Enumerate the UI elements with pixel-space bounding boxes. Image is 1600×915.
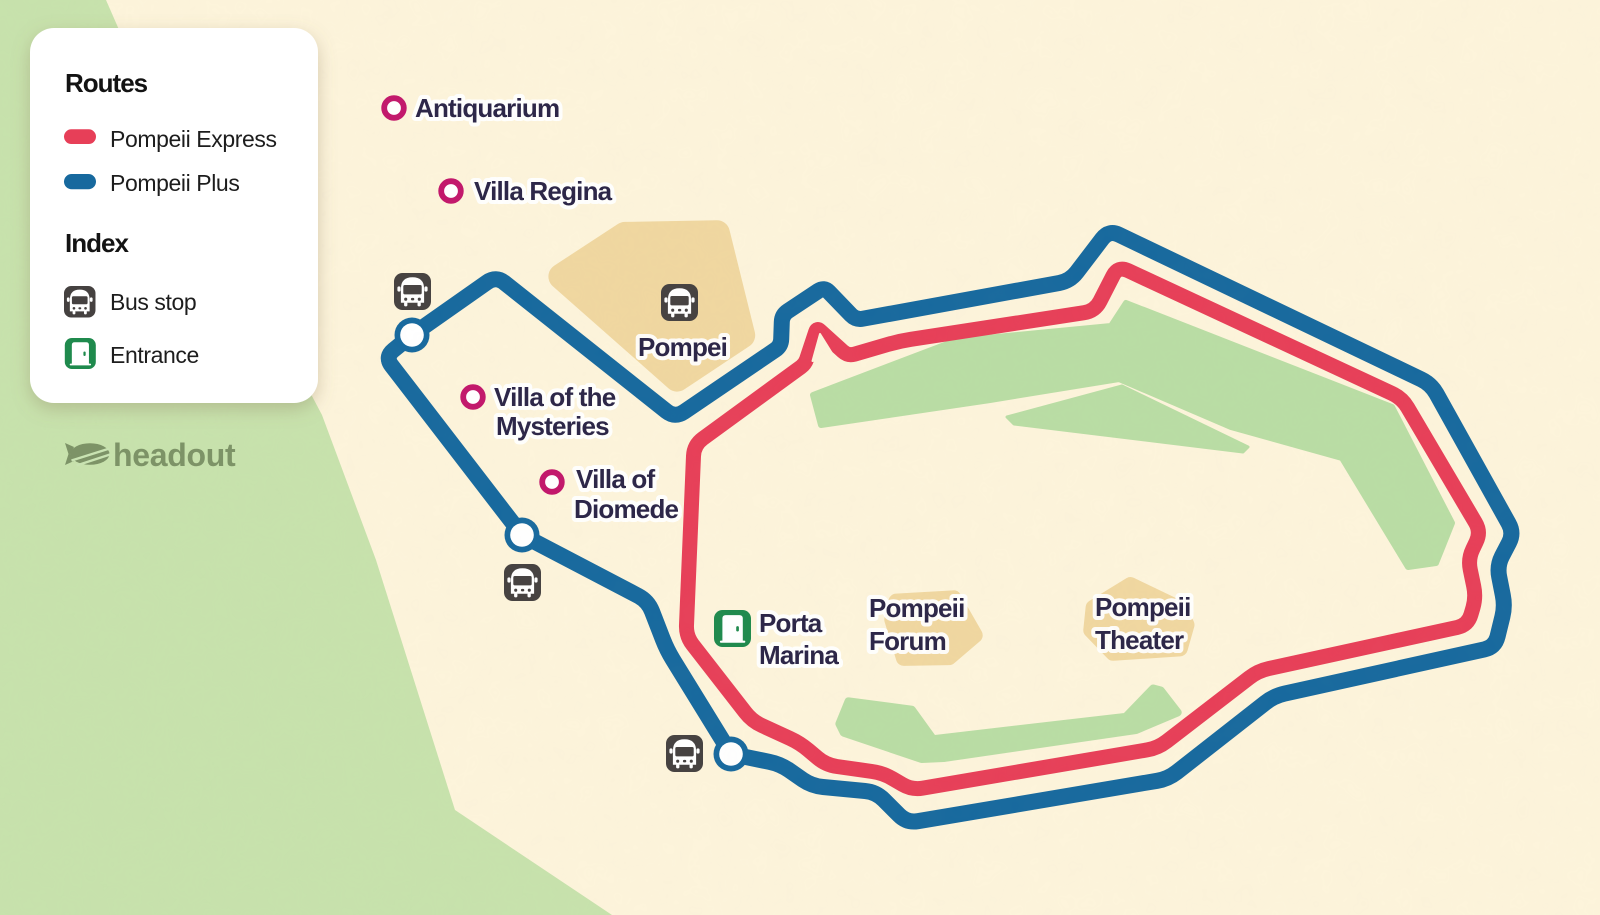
svg-text:Bus stop: Bus stop xyxy=(110,289,196,315)
svg-text:Entrance: Entrance xyxy=(110,342,199,368)
svg-text:Routes: Routes xyxy=(65,68,148,98)
svg-text:Pompeii Plus: Pompeii Plus xyxy=(110,170,239,196)
svg-text:Pompeii Express: Pompeii Express xyxy=(110,126,277,152)
svg-text:headout: headout xyxy=(113,437,236,473)
svg-text:Index: Index xyxy=(65,228,129,258)
